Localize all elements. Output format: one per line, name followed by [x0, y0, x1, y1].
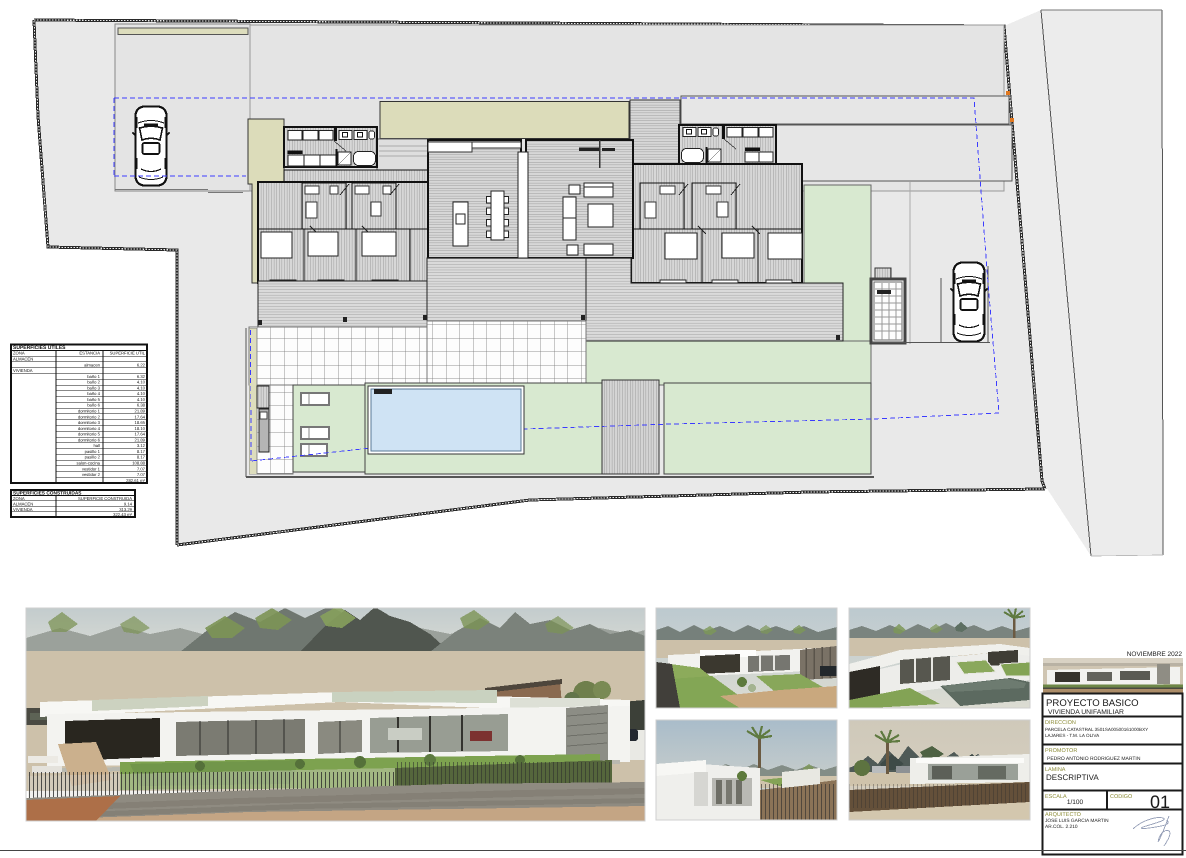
- svg-text:7.07: 7.07: [137, 472, 146, 477]
- svg-text:21.89: 21.89: [135, 409, 146, 414]
- svg-text:ZONA: ZONA: [13, 351, 25, 356]
- svg-text:8.17: 8.17: [137, 455, 146, 460]
- svg-text:17.64: 17.64: [135, 414, 146, 419]
- svg-text:21.89: 21.89: [135, 437, 146, 442]
- svg-text:ESCALA: ESCALA: [1045, 794, 1067, 800]
- svg-text:baño 2: baño 2: [87, 380, 100, 385]
- svg-text:baño 1: baño 1: [87, 374, 100, 379]
- svg-text:dormitorio 4: dormitorio 4: [78, 426, 101, 431]
- svg-text:ESTANCIA: ESTANCIA: [79, 351, 100, 356]
- svg-text:3.12: 3.12: [137, 443, 146, 448]
- svg-text:322.43 m²: 322.43 m²: [113, 512, 132, 517]
- svg-text:4.10: 4.10: [137, 391, 146, 396]
- svg-text:baño 6: baño 6: [87, 403, 100, 408]
- svg-text:6.32: 6.32: [137, 374, 146, 379]
- svg-text:PARCELA CATASTRAL 3501SA005001: PARCELA CATASTRAL 3501SA00500161000BXY: [1045, 727, 1148, 732]
- svg-text:CODIGO: CODIGO: [1110, 794, 1133, 800]
- svg-text:4.10: 4.10: [137, 385, 146, 390]
- svg-text:6.38: 6.38: [137, 403, 146, 408]
- svg-text:282.61 m²: 282.61 m²: [126, 478, 145, 483]
- svg-text:baño 5: baño 5: [87, 397, 100, 402]
- svg-text:18.65: 18.65: [135, 420, 146, 425]
- svg-text:ALMACEN: ALMACEN: [13, 357, 33, 362]
- svg-text:salon-cocina: salon-cocina: [76, 461, 100, 466]
- svg-text:108.88: 108.88: [132, 461, 145, 466]
- svg-text:vestidor 2: vestidor 2: [82, 472, 101, 477]
- svg-text:vestidor 1: vestidor 1: [82, 466, 101, 471]
- svg-text:SUPERFICIE CONSTRUIDA: SUPERFICIE CONSTRUIDA: [78, 496, 132, 501]
- svg-text:PROMOTOR: PROMOTOR: [1045, 748, 1077, 754]
- svg-text:dormitorio 2: dormitorio 2: [78, 414, 101, 419]
- svg-text:01: 01: [1150, 792, 1170, 812]
- svg-text:4.10: 4.10: [137, 380, 146, 385]
- svg-text:dormitorio 6: dormitorio 6: [78, 437, 101, 442]
- svg-text:hall: hall: [93, 443, 100, 448]
- svg-text:dormitorio 5: dormitorio 5: [78, 432, 101, 437]
- svg-text:dormitorio 1: dormitorio 1: [78, 409, 101, 414]
- svg-text:almacen: almacen: [84, 362, 100, 367]
- svg-text:17.64: 17.64: [135, 432, 146, 437]
- svg-text:NOVIEMBRE 2022: NOVIEMBRE 2022: [1127, 651, 1183, 658]
- svg-text:ALMACEN: ALMACEN: [13, 501, 33, 506]
- svg-text:4.10: 4.10: [137, 397, 146, 402]
- svg-text:VIVIENDA: VIVIENDA: [13, 507, 33, 512]
- svg-text:JOSE LUIS GARCIA MARTIN: JOSE LUIS GARCIA MARTIN: [1045, 818, 1109, 824]
- svg-text:8.17: 8.17: [137, 449, 146, 454]
- svg-text:baño 4: baño 4: [87, 391, 100, 396]
- svg-text:VIVIENDA: VIVIENDA: [13, 368, 33, 373]
- svg-text:baño 3: baño 3: [87, 385, 100, 390]
- svg-text:LAJARES - T.M. LA OLIVA: LAJARES - T.M. LA OLIVA: [1045, 733, 1100, 738]
- svg-text:DIRECCION: DIRECCION: [1045, 720, 1076, 726]
- svg-text:PROYECTO BASICO: PROYECTO BASICO: [1046, 698, 1139, 709]
- svg-text:ZONA: ZONA: [13, 496, 25, 501]
- svg-text:PEDRO ANTONIO RODRIGUEZ MARTIN: PEDRO ANTONIO RODRIGUEZ MARTIN: [1047, 756, 1141, 762]
- svg-text:313.29: 313.29: [119, 507, 132, 512]
- svg-text:AR.COL. 2.210: AR.COL. 2.210: [1045, 824, 1078, 830]
- svg-text:SUPERFICIE UTIL: SUPERFICIE UTIL: [110, 351, 146, 356]
- svg-text:6.22: 6.22: [137, 362, 146, 367]
- svg-text:1/100: 1/100: [1067, 799, 1084, 806]
- svg-text:18.10: 18.10: [135, 426, 146, 431]
- svg-text:7.07: 7.07: [137, 466, 146, 471]
- svg-text:dormitorio 3: dormitorio 3: [78, 420, 101, 425]
- svg-text:9.14: 9.14: [124, 501, 133, 506]
- svg-text:ARQUITECTO: ARQUITECTO: [1045, 812, 1082, 818]
- svg-text:DESCRIPTIVA: DESCRIPTIVA: [1046, 773, 1099, 782]
- svg-text:pasillo 1: pasillo 1: [85, 449, 101, 454]
- svg-text:VIVIENDA UNIFAMILIAR: VIVIENDA UNIFAMILIAR: [1048, 709, 1124, 716]
- svg-text:pasillo 2: pasillo 2: [85, 455, 101, 460]
